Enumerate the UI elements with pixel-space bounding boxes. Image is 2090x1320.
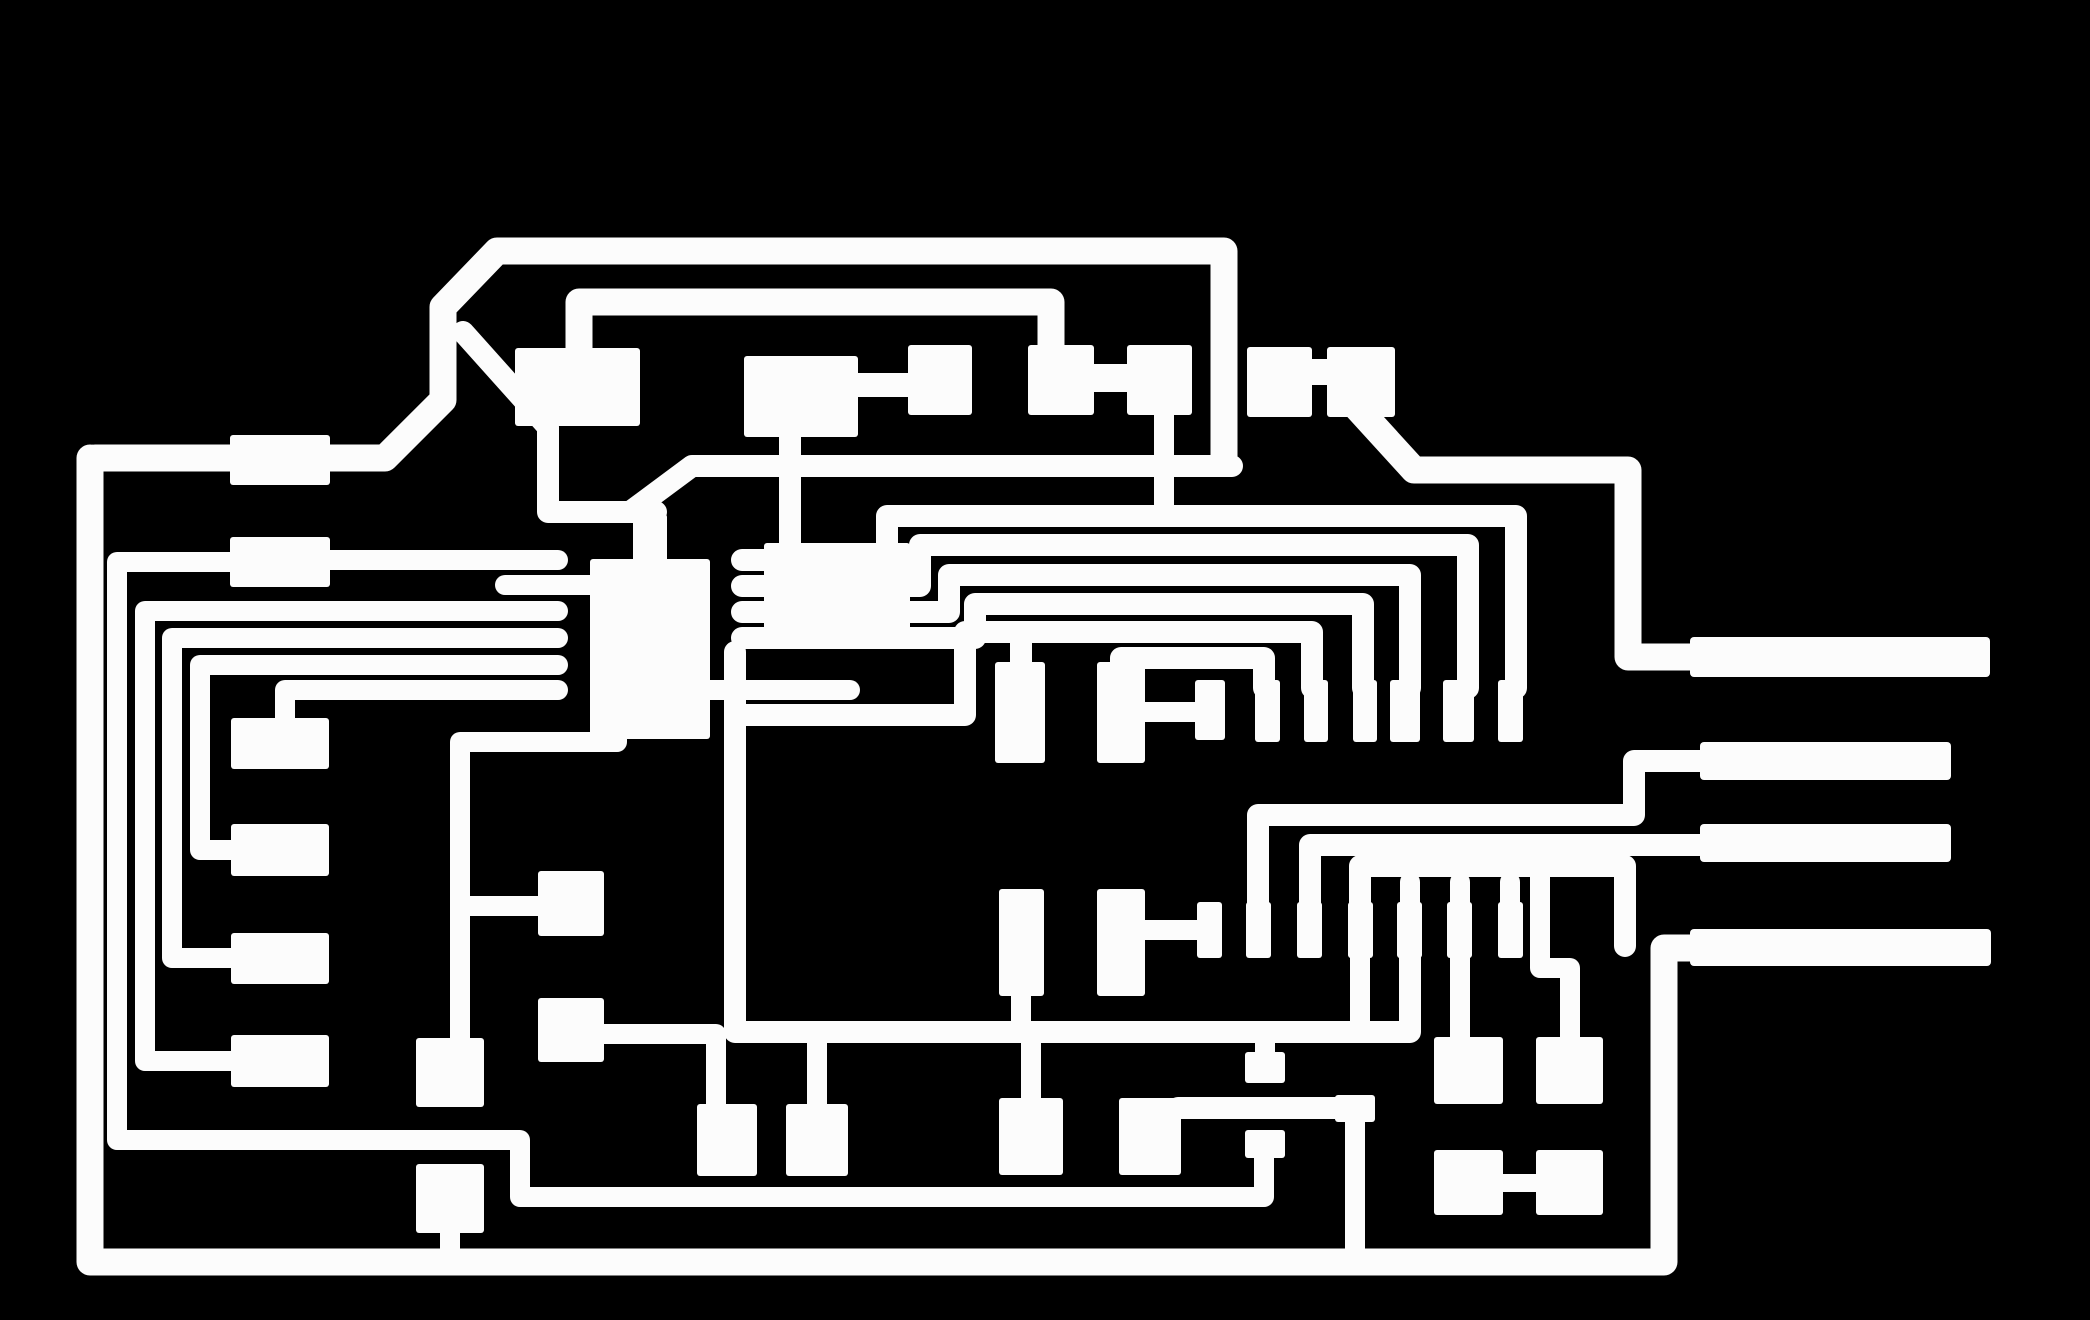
pad-left-col-L3	[231, 933, 329, 984]
pad-ladder2-t3	[1297, 902, 1322, 958]
pad-top-row-Pe1	[1247, 347, 1312, 417]
pad-hang-pad-2	[1245, 1130, 1285, 1158]
pad-top-row-Pc	[908, 345, 972, 415]
pad-ladder2-t5	[1397, 902, 1422, 958]
pad-ladder1-s7	[1498, 680, 1523, 742]
pad-ladder2-t4	[1348, 902, 1373, 958]
pad-ladder1-s1	[1195, 680, 1225, 740]
pad-left-col-L4	[231, 1035, 329, 1087]
pad-bottom-pad-C	[999, 1098, 1063, 1175]
pad-ladder2-t7	[1498, 902, 1523, 958]
pad-mid-col-pad-1	[416, 1038, 484, 1107]
pad-top-row-Pd	[1028, 345, 1094, 415]
pad-terminal-sq	[1335, 1095, 1375, 1122]
pad-pad-R1	[538, 871, 604, 936]
pad-sw-pad-B	[1536, 1037, 1603, 1104]
pad-ic-top-tab	[633, 514, 667, 564]
pad-sw-pad-D	[1536, 1150, 1603, 1215]
pad-ladder2-tall-P3	[999, 889, 1044, 996]
pad-ladder1-tall-P2	[1097, 662, 1145, 763]
pad-ladder2-t2	[1246, 902, 1271, 958]
bar-edge-finger-3	[1700, 824, 1951, 862]
bar-edge-finger-2	[1700, 742, 1951, 780]
pad-bottom-pad-W	[1119, 1098, 1181, 1175]
pad-left-col-L1	[231, 718, 329, 769]
pad-ladder1-s2	[1255, 680, 1280, 742]
pad-ladder1-s5	[1390, 680, 1420, 742]
pad-ladder1-s3	[1304, 680, 1328, 742]
pad-pad-R2	[538, 998, 604, 1062]
pad-left-pad-2	[230, 537, 330, 587]
bar-edge-finger-4	[1690, 929, 1991, 966]
pad-bottom-pad-B	[786, 1104, 848, 1176]
pcb-board-mask	[0, 0, 2090, 1320]
pad-top-row-Pe2	[1327, 347, 1395, 417]
pad-big-pad-A2	[764, 543, 910, 645]
pad-ic-body	[590, 559, 710, 739]
pad-ladder2-t1	[1197, 902, 1222, 958]
pad-ladder1-tall-P1	[995, 662, 1045, 763]
pad-ladder2-tall-P4	[1097, 889, 1145, 996]
pad-hang-pad-1	[1245, 1052, 1285, 1083]
pad-ladder1-s4	[1353, 680, 1377, 742]
bar-edge-finger-1	[1690, 637, 1990, 677]
pad-top-row-Pd2	[1127, 345, 1192, 415]
pad-sw-pad-A	[1434, 1037, 1503, 1104]
pad-ladder1-s6	[1443, 680, 1474, 742]
pad-top-row-Pb	[744, 356, 858, 437]
pcb-copper-layer	[0, 0, 2090, 1320]
pad-top-row-Pa	[515, 348, 640, 426]
pad-sw-pad-C	[1434, 1150, 1503, 1215]
pad-left-col-L2	[231, 824, 329, 876]
pad-ladder2-t6	[1447, 902, 1472, 958]
pad-mid-col-pad-2	[416, 1164, 484, 1233]
pad-bottom-pad-A	[697, 1104, 757, 1176]
pad-left-pad-1	[230, 435, 330, 485]
